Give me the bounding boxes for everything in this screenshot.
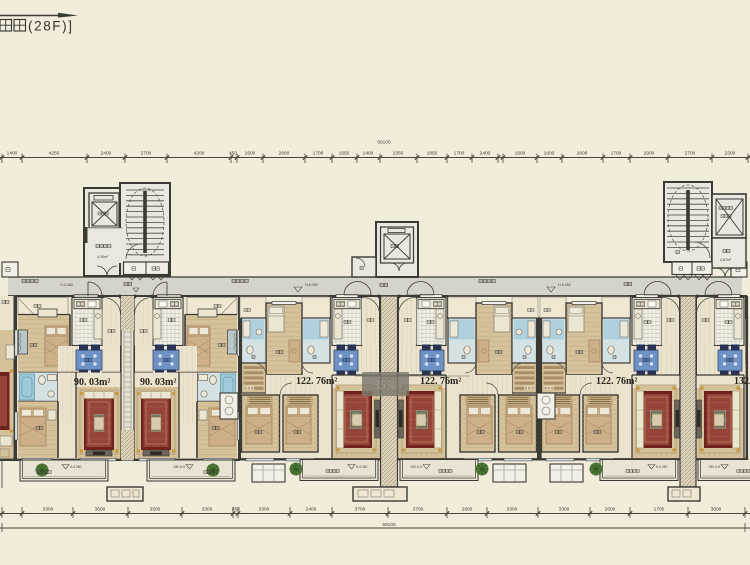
svg-text:H-6.050: H-6.050 bbox=[558, 283, 571, 287]
svg-text:59100: 59100 bbox=[382, 522, 396, 528]
svg-text:450: 450 bbox=[232, 507, 240, 513]
svg-text:3300: 3300 bbox=[259, 507, 270, 513]
svg-text:1400: 1400 bbox=[7, 151, 18, 157]
svg-text:3700: 3700 bbox=[355, 507, 366, 513]
svg-text:H-6.050: H-6.050 bbox=[356, 465, 368, 469]
svg-text:H-6.080: H-6.080 bbox=[173, 465, 185, 469]
svg-text:1600: 1600 bbox=[515, 151, 526, 157]
svg-text:2700: 2700 bbox=[141, 151, 152, 157]
svg-text:122. 76m²: 122. 76m² bbox=[596, 376, 637, 387]
svg-text:(28F)]: (28F)] bbox=[28, 19, 74, 34]
svg-text:2400: 2400 bbox=[306, 507, 317, 513]
svg-text:35%: 35% bbox=[373, 378, 397, 392]
svg-text:2600: 2600 bbox=[577, 151, 588, 157]
svg-text:1600: 1600 bbox=[544, 151, 555, 157]
svg-text:3300: 3300 bbox=[559, 507, 570, 513]
svg-text:3300: 3300 bbox=[202, 507, 213, 513]
svg-text:122. 76m²: 122. 76m² bbox=[420, 376, 461, 387]
svg-text:3300: 3300 bbox=[507, 507, 518, 513]
svg-text:3500: 3500 bbox=[150, 507, 161, 513]
svg-text:3300: 3300 bbox=[43, 507, 54, 513]
svg-text:2400: 2400 bbox=[101, 151, 112, 157]
svg-text:2600: 2600 bbox=[279, 151, 290, 157]
svg-text:H-6.050: H-6.050 bbox=[410, 465, 422, 469]
svg-text:1600: 1600 bbox=[245, 151, 256, 157]
svg-text:H-0.080: H-0.080 bbox=[60, 283, 73, 287]
svg-text:2700: 2700 bbox=[685, 151, 696, 157]
svg-text:2400: 2400 bbox=[480, 151, 491, 157]
svg-text:H-6.080: H-6.080 bbox=[70, 465, 82, 469]
svg-text:3700: 3700 bbox=[413, 507, 424, 513]
svg-text:1950: 1950 bbox=[427, 151, 438, 157]
svg-text:90. 03m²: 90. 03m² bbox=[74, 377, 110, 388]
svg-text:2600: 2600 bbox=[605, 507, 616, 513]
svg-text:2300: 2300 bbox=[725, 151, 736, 157]
svg-text:4.87m²: 4.87m² bbox=[720, 258, 732, 262]
svg-text:H-6.050: H-6.050 bbox=[708, 465, 720, 469]
svg-text:1650: 1650 bbox=[339, 151, 350, 157]
svg-text:1700: 1700 bbox=[313, 151, 324, 157]
svg-text:1700: 1700 bbox=[611, 151, 622, 157]
svg-text:4250: 4250 bbox=[49, 151, 60, 157]
svg-text:2900: 2900 bbox=[644, 151, 655, 157]
svg-text:2600: 2600 bbox=[462, 507, 473, 513]
svg-text:4.39m²: 4.39m² bbox=[97, 255, 109, 259]
svg-text:3600: 3600 bbox=[711, 507, 722, 513]
svg-text:1700: 1700 bbox=[654, 507, 665, 513]
svg-text:132.: 132. bbox=[734, 376, 750, 387]
svg-text:1700: 1700 bbox=[454, 151, 465, 157]
svg-text:3500: 3500 bbox=[95, 507, 106, 513]
svg-text:4200: 4200 bbox=[194, 151, 205, 157]
svg-text:59100: 59100 bbox=[377, 140, 391, 146]
svg-text:90. 03m²: 90. 03m² bbox=[140, 377, 176, 388]
svg-text:450: 450 bbox=[229, 151, 237, 157]
svg-text:H-6.050: H-6.050 bbox=[656, 465, 668, 469]
svg-text:H-6.050: H-6.050 bbox=[305, 283, 318, 287]
svg-text:122. 76m²: 122. 76m² bbox=[296, 376, 337, 387]
svg-text:2350: 2350 bbox=[393, 151, 404, 157]
svg-text:1400: 1400 bbox=[363, 151, 374, 157]
